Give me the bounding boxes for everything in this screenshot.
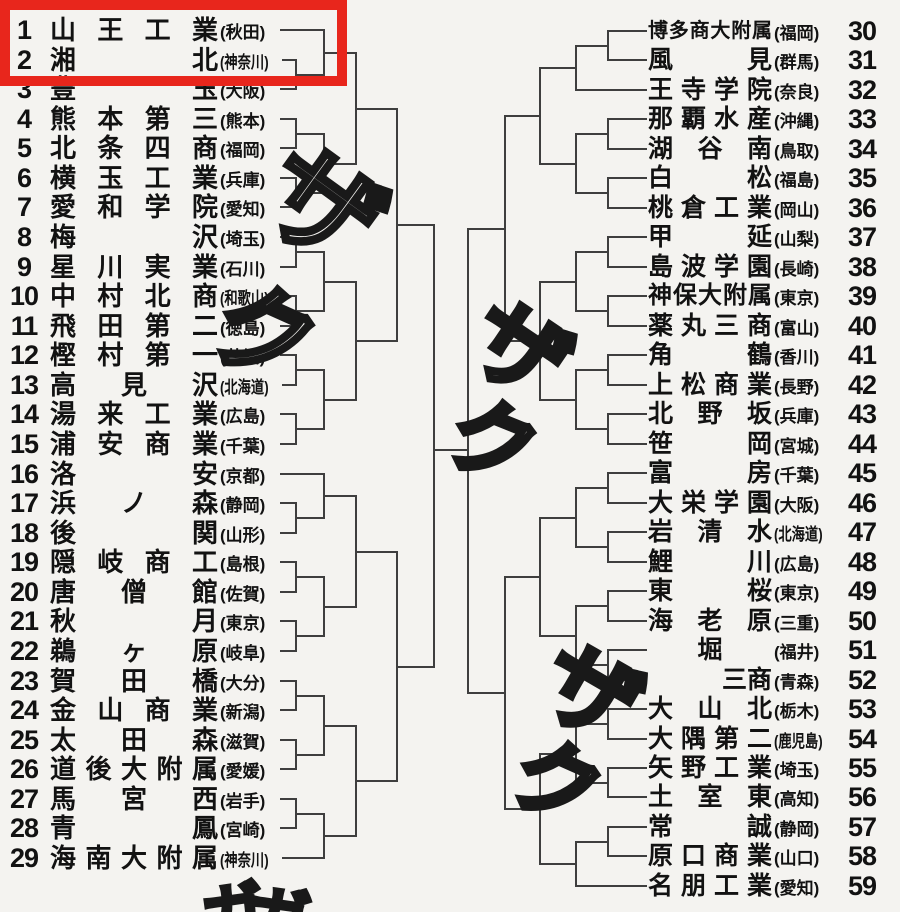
team-prefecture: (佐賀) [220,580,265,605]
team-row-27: 27馬宮西(岩手) [4,784,344,814]
team-prefecture: (静岡) [220,491,265,516]
team-name: 熊本第三 [50,106,218,132]
team-seed: 57 [848,812,892,843]
team-seed: 8 [4,222,44,253]
team-row-18: 18後関(山形) [4,518,344,548]
team-seed: 23 [4,666,44,697]
team-prefecture: (兵庫) [774,402,819,427]
team-name: 後関 [50,520,218,546]
team-seed: 11 [4,311,44,342]
team-seed: 19 [4,547,44,578]
team-name: 横玉工業 [50,165,218,191]
team-name: 東桜 [648,579,772,604]
team-prefecture: (沖縄) [774,107,819,132]
team-name: 鵜ヶ原 [50,638,218,664]
team-seed: 22 [4,636,44,667]
team-seed: 56 [848,782,892,813]
team-seed: 40 [848,311,892,342]
team-row-57: 常誠(静岡)57 [648,812,900,842]
team-row-49: 東桜(東京)49 [648,576,900,606]
team-seed: 49 [848,576,892,607]
team-prefecture: (埼玉) [774,756,819,781]
team-name: 笹岡 [648,432,772,457]
team-prefecture: (千葉) [220,432,265,457]
team-seed: 36 [848,193,892,224]
team-seed: 21 [4,606,44,637]
team-prefecture: (宮崎) [220,816,265,841]
team-row-41: 角鶴(香川)41 [648,340,900,370]
team-seed: 55 [848,753,892,784]
team-prefecture: (鹿児島) [774,727,823,752]
team-prefecture: (奈良) [774,78,819,103]
team-seed: 24 [4,695,44,726]
team-name: 高見沢 [50,372,218,398]
team-name: 土室東 [648,785,772,810]
team-row-45: 富房(千葉)45 [648,458,900,488]
handwritten-sfx-char-7: ガ [243,884,313,912]
team-seed: 59 [848,871,892,902]
team-row-36: 桃倉工業(岡山)36 [648,193,900,223]
team-seed: 26 [4,754,44,785]
team-prefecture: (山口) [774,844,819,869]
team-prefecture: (東京) [220,609,265,634]
team-prefecture: (北海道) [774,520,823,545]
team-name: 秋月 [50,608,218,634]
team-seed: 41 [848,340,892,371]
team-name: 道後大附属 [50,756,218,782]
team-seed: 25 [4,725,44,756]
team-seed: 32 [848,75,892,106]
team-name: 飛田第二 [50,313,218,339]
team-name: 浜ノ森 [50,490,218,516]
team-row-59: 名朋工業(愛知)59 [648,871,900,901]
team-row-4: 4熊本第三(熊本) [4,104,344,134]
team-row-54: 大隅第二(鹿児島)54 [648,724,900,754]
team-seed: 30 [848,16,892,47]
team-prefecture: (富山) [774,314,819,339]
team-seed: 10 [4,281,44,312]
team-name: 北条四商 [50,135,218,161]
team-name: 常誠 [648,815,772,840]
team-seed: 35 [848,163,892,194]
team-row-33: 那覇水産(沖縄)33 [648,104,900,134]
team-name: 白松 [648,166,772,191]
team-name: 太田森 [50,727,218,753]
team-seed: 27 [4,784,44,815]
team-seed: 54 [848,724,892,755]
team-name: 風見 [648,48,772,73]
team-row-43: 北野坂(兵庫)43 [648,399,900,429]
team-prefecture: (福岡) [220,136,265,161]
team-name: 富房 [648,461,772,486]
team-name: 那覇水産 [648,107,772,132]
team-name: 唐僧館 [50,579,218,605]
team-prefecture: (新潟) [220,698,265,723]
team-seed: 42 [848,370,892,401]
team-name: 三商 [648,668,772,693]
team-row-44: 笹岡(宮城)44 [648,429,900,459]
team-name: 上松商業 [648,373,772,398]
team-name: 馬宮西 [50,786,218,812]
team-row-52: 三商(青森)52 [648,665,900,695]
team-name: 海老原 [648,609,772,634]
team-prefecture: (東京) [774,284,819,309]
team-prefecture: (高知) [774,785,819,810]
team-name: 愛和学院 [50,194,218,220]
team-row-34: 湖谷南(鳥取)34 [648,134,900,164]
team-name: 岩清水 [648,520,772,545]
team-name: 大山北 [648,697,772,722]
team-name: 洛安 [50,461,218,487]
team-seed: 13 [4,370,44,401]
team-prefecture: (大阪) [774,491,819,516]
team-name: 賀田橋 [50,668,218,694]
team-row-28: 28青鳳(宮崎) [4,813,344,843]
team-prefecture: (福井) [774,638,819,663]
team-name: 矢野工業 [648,756,772,781]
team-prefecture: (鳥取) [774,137,819,162]
team-name: 島波学園 [648,255,772,280]
team-seed: 43 [848,399,892,430]
team-row-50: 海老原(三重)50 [648,606,900,636]
team-name: 梅沢 [50,224,218,250]
team-seed: 5 [4,133,44,164]
team-seed: 20 [4,577,44,608]
team-seed: 6 [4,163,44,194]
team-name: 金山商業 [50,697,218,723]
team-row-23: 23賀田橋(大分) [4,666,344,696]
highlight-box [0,0,347,86]
team-name: 角鶴 [648,343,772,368]
team-row-19: 19隠岐商工(島根) [4,547,344,577]
team-prefecture: (栃木) [774,697,819,722]
team-row-40: 薬丸三商(富山)40 [648,311,900,341]
team-prefecture: (岐阜) [220,639,265,664]
team-prefecture: (京都) [220,462,265,487]
team-name: 隠岐商工 [50,549,218,575]
team-row-22: 22鵜ヶ原(岐阜) [4,636,344,666]
team-row-48: 鯉川(広島)48 [648,547,900,577]
team-prefecture: (東京) [774,579,819,604]
team-prefecture: (山形) [220,521,265,546]
team-row-30: 博多商大附属(福岡)30 [648,16,900,46]
team-name: 原口商業 [648,844,772,869]
team-prefecture: (福岡) [774,19,819,44]
team-prefecture: (岩手) [220,787,265,812]
team-name: 王寺学院 [648,78,772,103]
team-prefecture: (青森) [774,668,819,693]
team-row-47: 岩清水(北海道)47 [648,517,900,547]
team-seed: 52 [848,665,892,696]
team-name: 中村北商 [50,283,218,309]
team-seed: 29 [4,843,44,874]
team-prefecture: (宮城) [774,432,819,457]
team-row-14: 14湯来工業(広島) [4,399,344,429]
team-prefecture: (愛媛) [220,757,265,782]
team-prefecture: (福島) [774,166,819,191]
team-row-31: 風見(群馬)31 [648,45,900,75]
team-seed: 58 [848,841,892,872]
team-prefecture: (神奈川) [220,846,269,871]
team-row-37: 甲延(山梨)37 [648,222,900,252]
team-seed: 38 [848,252,892,283]
team-name: 樫村第一 [50,342,218,368]
team-seed: 39 [848,281,892,312]
team-name: 湖谷南 [648,137,772,162]
team-row-17: 17浜ノ森(静岡) [4,488,344,518]
team-prefecture: (香川) [774,343,819,368]
team-row-16: 16洛安(京都) [4,459,344,489]
team-row-20: 20唐僧館(佐賀) [4,577,344,607]
team-prefecture: (静岡) [774,815,819,840]
team-row-35: 白松(福島)35 [648,163,900,193]
team-seed: 15 [4,429,44,460]
team-row-56: 土室東(高知)56 [648,782,900,812]
team-seed: 4 [4,104,44,135]
team-seed: 16 [4,459,44,490]
team-prefecture: (愛知) [774,874,819,899]
team-seed: 33 [848,104,892,135]
team-row-24: 24金山商業(新潟) [4,695,344,725]
team-row-46: 大栄学園(大阪)46 [648,488,900,518]
team-name: 海南大附属 [50,845,218,871]
team-prefecture: (長野) [774,373,819,398]
team-seed: 53 [848,694,892,725]
team-name: 浦安商業 [50,431,218,457]
team-row-51: 堀(福井)51 [648,635,900,665]
team-row-58: 原口商業(山口)58 [648,841,900,871]
team-name: 湯来工業 [50,401,218,427]
team-name: 甲延 [648,225,772,250]
team-seed: 48 [848,547,892,578]
team-row-32: 王寺学院(奈良)32 [648,75,900,105]
team-seed: 12 [4,340,44,371]
team-prefecture: (岡山) [774,196,819,221]
team-row-26: 26道後大附属(愛媛) [4,754,344,784]
team-prefecture: (群馬) [774,48,819,73]
team-seed: 47 [848,517,892,548]
team-name: 青鳳 [50,815,218,841]
team-name: 神保大附属 [648,284,772,308]
team-name: 星川実業 [50,254,218,280]
team-row-15: 15浦安商業(千葉) [4,429,344,459]
team-seed: 44 [848,429,892,460]
team-seed: 14 [4,399,44,430]
team-name: 鯉川 [648,550,772,575]
team-row-38: 島波学園(長崎)38 [648,252,900,282]
team-seed: 46 [848,488,892,519]
tournament-bracket-page: 1山王工業(秋田)2湘北(神奈川)3豊玉(大阪)4熊本第三(熊本)5北条四商(福… [0,0,900,912]
team-prefecture: (三重) [774,609,819,634]
team-name: 大栄学園 [648,491,772,516]
team-seed: 51 [848,635,892,666]
team-name: 堀 [648,638,772,663]
team-seed: 9 [4,252,44,283]
team-row-42: 上松商業(長野)42 [648,370,900,400]
team-prefecture: (兵庫) [220,166,265,191]
team-name: 薬丸三商 [648,314,772,339]
team-prefecture: (広島) [774,550,819,575]
team-name: 大隅第二 [648,727,772,752]
team-prefecture: (熊本) [220,107,265,132]
team-seed: 18 [4,518,44,549]
team-row-55: 矢野工業(埼玉)55 [648,753,900,783]
team-prefecture: (大分) [220,669,265,694]
team-prefecture: (山梨) [774,225,819,250]
team-prefecture: (島根) [220,550,265,575]
team-seed: 37 [848,222,892,253]
team-row-53: 大山北(栃木)53 [648,694,900,724]
team-seed: 45 [848,458,892,489]
team-row-39: 神保大附属(東京)39 [648,281,900,311]
team-seed: 17 [4,488,44,519]
team-row-25: 25太田森(滋賀) [4,725,344,755]
team-prefecture: (千葉) [774,461,819,486]
team-seed: 50 [848,606,892,637]
team-seed: 7 [4,192,44,223]
team-name: 博多商大附属 [648,21,772,41]
team-prefecture: (長崎) [774,255,819,280]
team-prefecture: (広島) [220,402,265,427]
team-name: 桃倉工業 [648,196,772,221]
team-row-29: 29海南大附属(神奈川) [4,843,344,873]
team-name: 北野坂 [648,402,772,427]
team-seed: 34 [848,134,892,165]
team-seed: 31 [848,45,892,76]
team-row-21: 21秋月(東京) [4,606,344,636]
team-seed: 28 [4,813,44,844]
team-name: 名朋工業 [648,874,772,899]
team-prefecture: (滋賀) [220,728,265,753]
